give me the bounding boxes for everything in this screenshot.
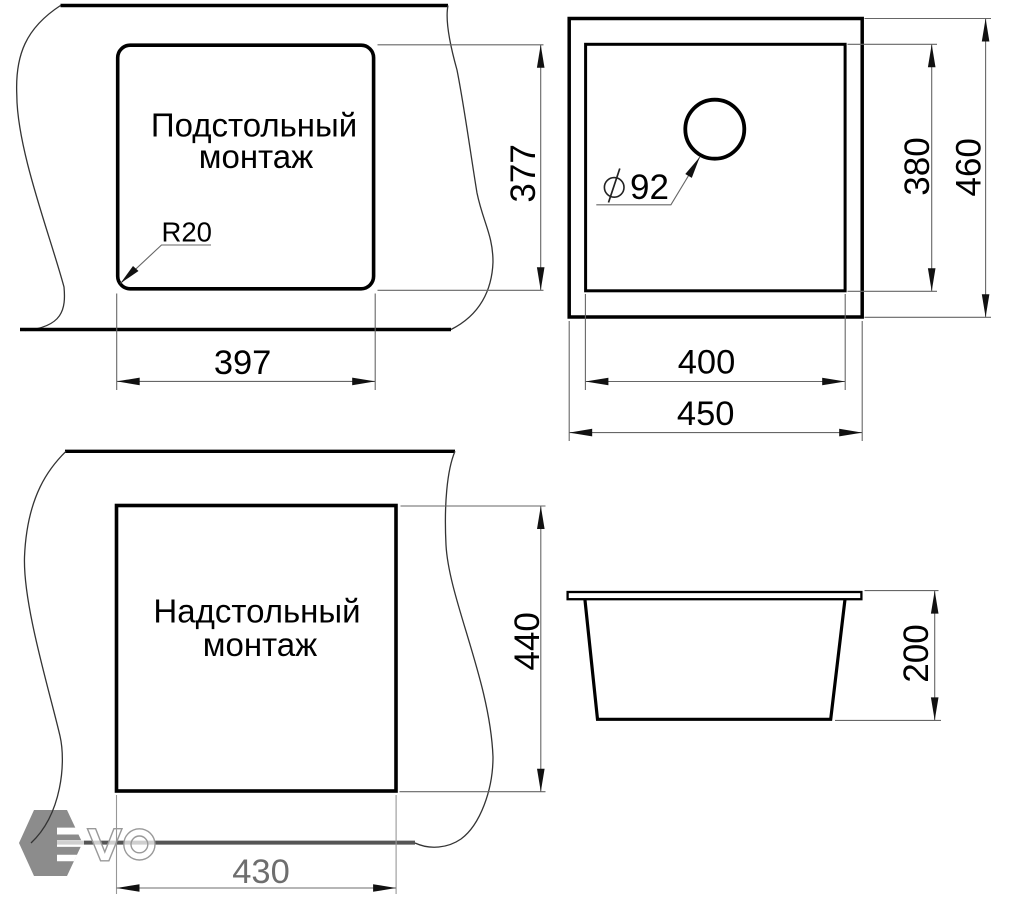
svg-text:200: 200: [897, 624, 936, 682]
svg-text:92: 92: [630, 168, 669, 207]
svg-text:450: 450: [677, 395, 735, 433]
svg-text:460: 460: [950, 138, 989, 196]
svg-text:397: 397: [214, 344, 272, 382]
svg-text:монтаж: монтаж: [203, 626, 317, 663]
svg-text:монтаж: монтаж: [199, 138, 313, 175]
svg-text:400: 400: [678, 344, 736, 382]
svg-text:377: 377: [504, 144, 543, 202]
svg-text:Надстольный: Надстольный: [153, 593, 360, 630]
svg-text:380: 380: [898, 137, 937, 195]
svg-text:430: 430: [232, 853, 290, 891]
svg-text:R20: R20: [162, 217, 212, 248]
svg-text:440: 440: [508, 612, 547, 670]
